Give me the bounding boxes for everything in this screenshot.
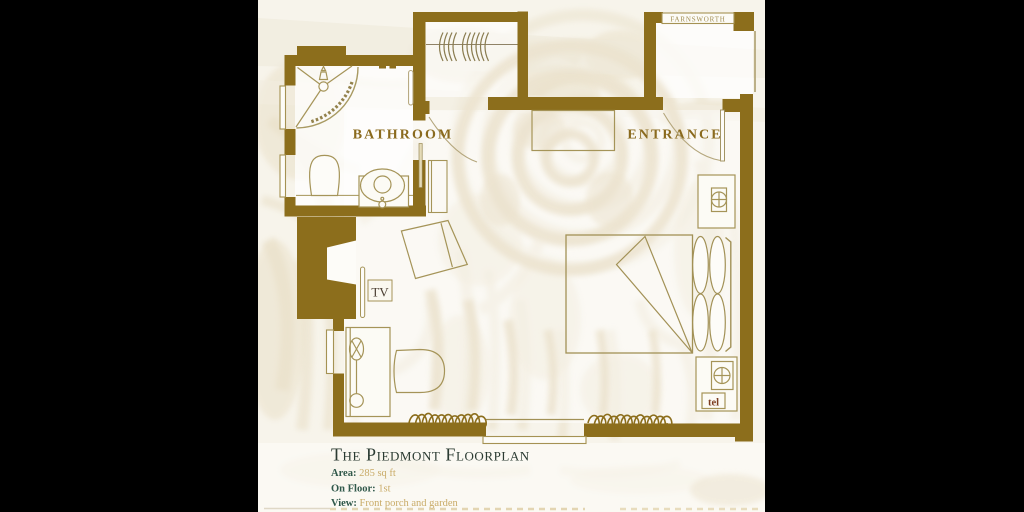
svg-text:BATHROOM: BATHROOM bbox=[353, 128, 454, 143]
svg-text:FARNSWORTH: FARNSWORTH bbox=[670, 16, 725, 24]
svg-text:The Piedmont Floorplan: The Piedmont Floorplan bbox=[331, 445, 530, 465]
svg-text:Area: 285 sq ft: Area: 285 sq ft bbox=[331, 468, 396, 479]
svg-text:On Floor: 1st: On Floor: 1st bbox=[331, 484, 391, 495]
svg-text:View: Front porch and garden: View: Front porch and garden bbox=[331, 498, 458, 509]
svg-text:TV: TV bbox=[371, 285, 389, 300]
svg-text:tel: tel bbox=[708, 398, 719, 409]
